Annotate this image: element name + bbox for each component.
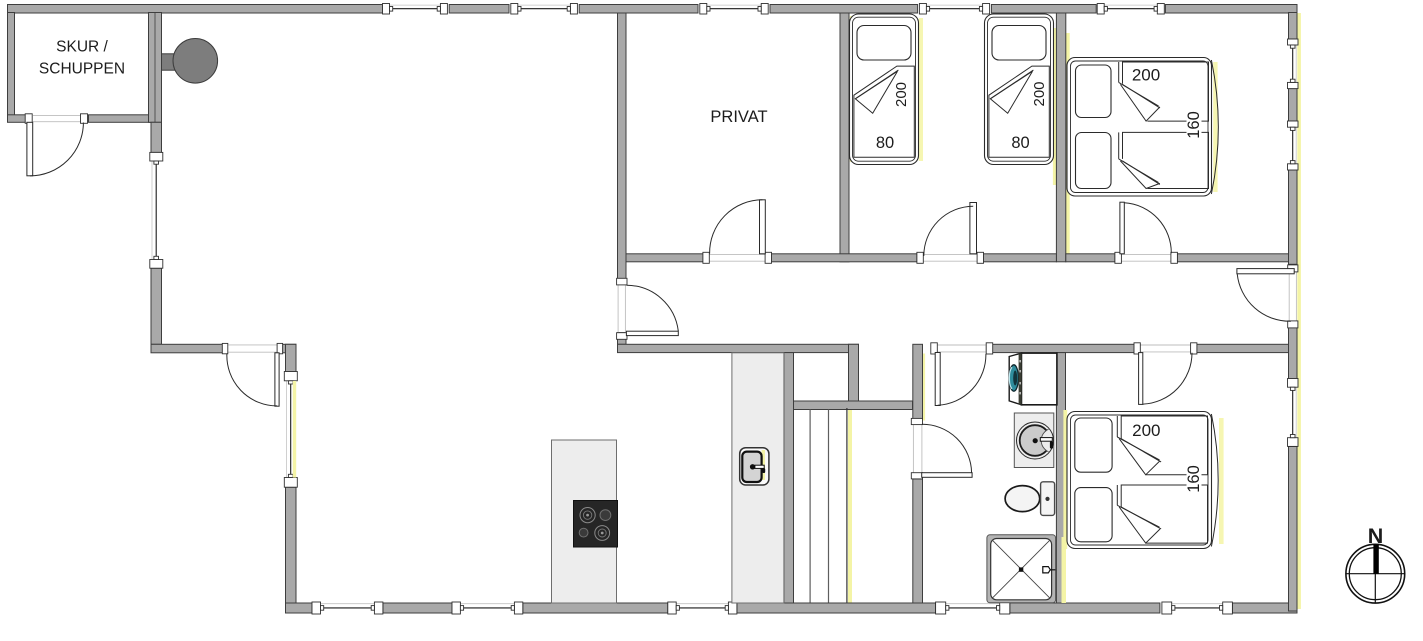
svg-text:160: 160 [1185, 465, 1203, 493]
svg-text:SCHUPPEN: SCHUPPEN [39, 61, 125, 78]
svg-text:PRIVAT: PRIVAT [710, 108, 767, 126]
svg-text:SKUR /: SKUR / [56, 39, 108, 56]
svg-text:200: 200 [1132, 66, 1160, 85]
svg-text:200: 200 [1031, 81, 1048, 106]
svg-text:80: 80 [876, 134, 894, 152]
svg-text:160: 160 [1185, 111, 1203, 139]
svg-text:N: N [1368, 524, 1384, 548]
svg-text:200: 200 [893, 82, 910, 107]
svg-text:200: 200 [1132, 421, 1160, 440]
svg-text:80: 80 [1011, 134, 1029, 152]
